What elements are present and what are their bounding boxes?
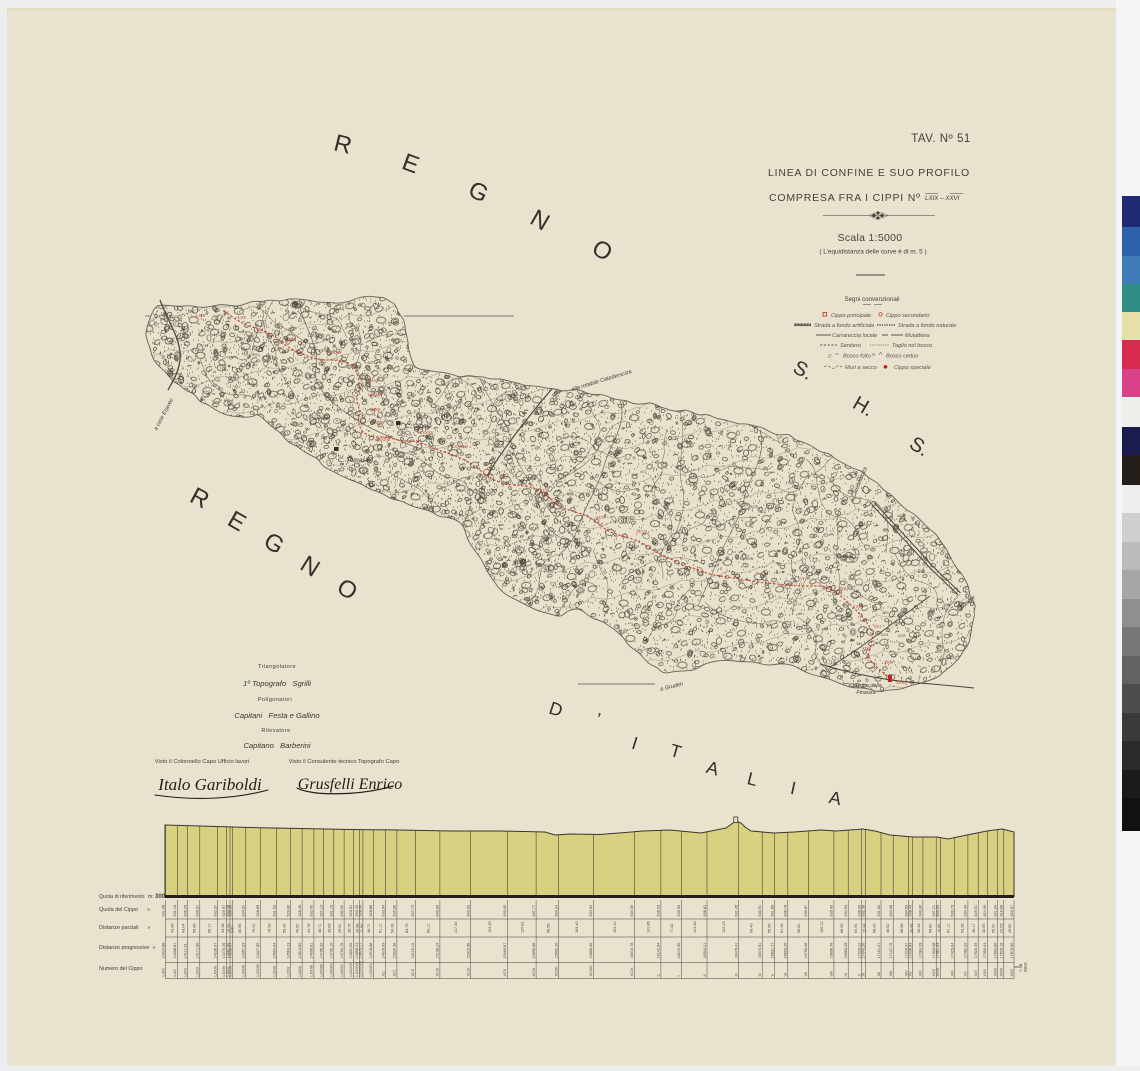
svg-text:LXXXI: LXXXI [298, 966, 302, 977]
svg-text:59.39: 59.39 [283, 923, 287, 933]
svg-text:Carrareccia locale: Carrareccia locale [832, 333, 877, 339]
svg-text:125.81: 125.81 [521, 921, 525, 933]
svg-text:XCVI: XCVI [532, 968, 536, 977]
svg-text:XC: XC [500, 473, 506, 478]
svg-text:390: 390 [252, 352, 259, 357]
svg-text:XXI: XXI [974, 970, 978, 976]
svg-text:17603.66: 17603.66 [993, 943, 997, 959]
svg-text:14564.23: 14564.23 [286, 943, 290, 959]
svg-text:14794.76: 14794.76 [340, 943, 344, 959]
svg-text:III: III [735, 973, 739, 976]
svg-text:Capitani Festa e Gallino: Capitani Festa e Gallino [234, 711, 319, 720]
svg-text:Muri a secco: Muri a secco [845, 365, 877, 371]
svg-text:77.32: 77.32 [670, 923, 674, 933]
svg-text:16219.95: 16219.95 [677, 943, 681, 959]
svg-text:II: II [720, 566, 722, 571]
svg-text:386: 386 [779, 520, 786, 525]
svg-text:58.02: 58.02 [872, 923, 876, 933]
svg-text:124.26: 124.26 [693, 921, 697, 933]
svg-text:621.04: 621.04 [993, 905, 997, 917]
svg-text:XCII: XCII [411, 969, 415, 976]
svg-text:VI: VI [784, 973, 788, 977]
svg-text:60.96: 60.96 [238, 923, 242, 933]
svg-text:640.00: 640.00 [436, 905, 440, 917]
svg-text:65.17: 65.17 [208, 923, 212, 933]
svg-text:17429.04: 17429.04 [950, 943, 954, 959]
svg-text:631.45: 631.45 [735, 905, 739, 917]
svg-text:16575.81: 16575.81 [758, 943, 762, 959]
svg-text:463: 463 [935, 649, 942, 654]
svg-text:XXV: XXV [1010, 968, 1014, 976]
svg-text:1º Topografo Sgrilli: 1º Topografo Sgrilli [243, 679, 311, 688]
svg-text:638.43: 638.43 [909, 905, 913, 917]
svg-text:640.00: 640.00 [919, 905, 923, 917]
svg-text:632.92: 632.92 [340, 905, 344, 917]
svg-text:630.87: 630.87 [804, 905, 808, 917]
svg-text:49.82: 49.82 [1008, 923, 1012, 933]
svg-text:16476.41: 16476.41 [735, 943, 739, 959]
svg-text:631.10: 631.10 [330, 905, 334, 917]
svg-text:14171.80: 14171.80 [196, 943, 200, 959]
svg-text:XCIII: XCIII [436, 968, 440, 976]
svg-text:33.48: 33.48 [221, 923, 225, 933]
svg-text:XCVII: XCVII [636, 529, 647, 534]
svg-text:14111.91: 14111.91 [183, 943, 187, 958]
svg-text:XCV: XCV [596, 515, 605, 520]
svg-text:LXXXI: LXXXI [372, 420, 384, 425]
svg-text:17626.18: 17626.18 [1000, 943, 1004, 959]
svg-text:XVIII: XVIII [936, 968, 940, 976]
svg-text:LXXXII: LXXXII [310, 965, 314, 977]
svg-text:631.18: 631.18 [173, 905, 177, 917]
svg-text:634.24: 634.24 [554, 905, 558, 917]
svg-text:16010.78: 16010.78 [630, 943, 634, 959]
svg-text:635.98: 635.98 [393, 905, 397, 917]
svg-text:20.46: 20.46 [910, 923, 914, 933]
svg-text:15315.58: 15315.58 [466, 943, 470, 959]
svg-text:631.98: 631.98 [161, 905, 165, 917]
svg-text:106.72: 106.72 [820, 921, 824, 933]
svg-text:14979.99: 14979.99 [381, 943, 385, 959]
svg-text:16631.77: 16631.77 [770, 943, 774, 959]
svg-text:632.37: 632.37 [214, 905, 218, 917]
svg-text:II: II [703, 974, 707, 976]
svg-text:300: 300 [155, 894, 166, 900]
svg-text:44.76: 44.76 [307, 923, 311, 933]
svg-text:LXXVII: LXXVII [366, 378, 379, 383]
svg-text:IX: IX [844, 972, 848, 976]
svg-text:624.99: 624.99 [983, 905, 987, 917]
svg-text:Strada a fondo naturale: Strada a fondo naturale [898, 323, 956, 329]
svg-text:629.91: 629.91 [974, 905, 978, 917]
svg-text:14357.63: 14357.63 [242, 943, 246, 959]
svg-text:XX: XX [964, 971, 968, 977]
svg-text:LXXIII: LXXIII [214, 966, 218, 976]
svg-text:Numero del Cippo: Numero del Cippo [99, 966, 142, 972]
svg-text:49.61: 49.61 [338, 923, 342, 933]
svg-text:LXXXV: LXXXV [340, 964, 344, 977]
svg-text:39.83: 39.83 [328, 923, 332, 933]
svg-text:640.00: 640.00 [466, 905, 470, 917]
svg-text:628.46: 628.46 [359, 905, 363, 917]
svg-text:Quota di riferimento: Quota di riferimento [99, 894, 145, 900]
svg-text:I: I [677, 975, 681, 976]
svg-text:636.81: 636.81 [703, 905, 707, 917]
svg-text:LXXIX: LXXIX [272, 965, 276, 976]
svg-text:C: C [680, 556, 683, 561]
svg-text:Segni convenzionali: Segni convenzionali [844, 296, 899, 303]
svg-text:117.34: 117.34 [454, 922, 458, 933]
svg-text:LXXXIII: LXXXIII [319, 964, 323, 977]
svg-text:14745.15: 14745.15 [330, 943, 334, 959]
svg-text:391: 391 [631, 622, 638, 627]
svg-text:LXX: LXX [173, 969, 177, 977]
svg-text:99.40: 99.40 [750, 923, 754, 933]
svg-text:LXXIV: LXXIV [330, 350, 342, 355]
svg-text:Distanze parziali »: Distanze parziali » [99, 925, 151, 931]
svg-text:416: 416 [450, 415, 457, 420]
svg-text:55.96: 55.96 [767, 923, 771, 933]
svg-text:LXXII: LXXII [196, 967, 200, 976]
svg-text:445: 445 [649, 449, 656, 454]
svg-text:14705.32: 14705.32 [319, 943, 323, 959]
svg-text:17043.26: 17043.26 [861, 943, 865, 959]
svg-text:LXXVI: LXXVI [228, 966, 232, 977]
svg-text:14504.84: 14504.84 [272, 943, 276, 959]
svg-text:XXIV: XXIV [884, 660, 894, 665]
svg-text:630.91: 630.91 [758, 905, 762, 917]
svg-text:LXXX: LXXX [370, 407, 381, 412]
svg-text:Italo Gariboldi: Italo Gariboldi [157, 775, 262, 794]
svg-text:Cippo secondario: Cippo secondario [886, 313, 930, 319]
svg-text:C. Tomasin: C. Tomasin [338, 457, 371, 464]
svg-text:VII: VII [804, 972, 808, 977]
svg-text:Rilevatore: Rilevatore [261, 728, 290, 734]
svg-text:637.79: 637.79 [411, 905, 415, 917]
svg-text:76.99: 76.99 [267, 923, 271, 933]
svg-text:154.12: 154.12 [613, 921, 617, 933]
svg-text:XII: XII [877, 972, 881, 977]
svg-text:634.52: 634.52 [242, 905, 246, 917]
svg-text:XIX: XIX [856, 604, 863, 609]
svg-text:36.79: 36.79 [348, 923, 352, 933]
svg-text:XC: XC [381, 971, 385, 977]
svg-text:Cippo speciale: Cippo speciale [894, 365, 931, 371]
svg-text:16963.28: 16963.28 [844, 943, 848, 959]
svg-text:Distanze progressive »: Distanze progressive » [99, 945, 155, 951]
svg-text:LXXVIII: LXXVIII [368, 392, 382, 397]
svg-text:622.97: 622.97 [1010, 905, 1014, 917]
svg-text:26.68: 26.68 [355, 923, 359, 933]
svg-text:XVI: XVI [919, 970, 923, 976]
svg-text:XXIII: XXIII [862, 646, 871, 651]
svg-text:32.55: 32.55 [982, 923, 986, 933]
svg-text:16142.64: 16142.64 [657, 943, 661, 959]
svg-text:14658.61: 14658.61 [310, 943, 314, 959]
svg-text:43.99: 43.99 [170, 923, 174, 933]
svg-text:Casotto della: Casotto della [850, 683, 881, 689]
svg-text:LXXII: LXXII [286, 337, 296, 342]
svg-text:388: 388 [631, 472, 638, 477]
svg-text:Bosco folto: Bosco folto [843, 354, 871, 360]
svg-text:Sentiero: Sentiero [840, 343, 861, 349]
svg-text:386: 386 [248, 381, 255, 386]
svg-text:54.39: 54.39 [390, 923, 394, 933]
svg-text:628.88: 628.88 [369, 905, 373, 917]
svg-text:XCI: XCI [393, 970, 397, 976]
svg-text:15198.24: 15198.24 [436, 943, 440, 959]
svg-text:15.04: 15.04 [863, 923, 867, 933]
svg-text:Finanza: Finanza [856, 690, 875, 696]
svg-text:429: 429 [882, 610, 889, 615]
svg-text:16896.78: 16896.78 [830, 943, 834, 959]
svg-text:XV: XV [909, 971, 913, 977]
svg-text:Visto il Consulente tecnico T: Visto il Consulente tecnico Topografo Ca… [289, 759, 400, 765]
svg-text:49.62: 49.62 [295, 923, 299, 933]
svg-text:XXVI: XXVI [896, 680, 906, 685]
svg-text:LXXVIII: LXXVIII [256, 964, 260, 977]
svg-text:423: 423 [759, 509, 766, 514]
svg-text:17147.79: 17147.79 [889, 943, 893, 959]
svg-text:53.28: 53.28 [960, 923, 964, 933]
svg-text:Cippo principale: Cippo principale [831, 313, 871, 319]
svg-text:LXXX: LXXX [286, 966, 290, 976]
svg-text:Visto il Colonnello Capo Uff: Visto il Colonnello Capo Ufficio lavori [155, 759, 250, 765]
svg-text:LXXXIII: LXXXIII [376, 437, 390, 442]
svg-text:V: V [770, 974, 774, 977]
svg-text:637.77: 637.77 [532, 905, 536, 917]
svg-text:634.08: 634.08 [889, 905, 893, 917]
svg-text:467: 467 [367, 360, 374, 365]
svg-text:XXIII: XXIII [993, 968, 997, 976]
svg-text:61.48: 61.48 [780, 923, 784, 933]
svg-text:XCIX: XCIX [630, 967, 634, 976]
svg-text:638.09: 638.09 [228, 905, 232, 917]
svg-text:Grusfelli Enrico: Grusfelli Enrico [298, 776, 402, 793]
svg-text:17482.32: 17482.32 [964, 943, 968, 959]
svg-text:463: 463 [570, 556, 577, 561]
svg-text:421: 421 [510, 498, 517, 503]
svg-text:15595.68: 15595.68 [532, 943, 536, 959]
svg-text:459: 459 [746, 556, 753, 561]
svg-text:59.80: 59.80 [929, 923, 933, 933]
svg-text:420: 420 [881, 632, 888, 637]
svg-text:164.40: 164.40 [575, 921, 579, 933]
svg-text:18.85: 18.85 [937, 923, 941, 933]
svg-text:LXXXIV: LXXXIV [330, 963, 334, 977]
svg-text:422: 422 [750, 504, 757, 509]
svg-text:XCII: XCII [540, 488, 548, 493]
svg-text:Taglio nel bosco: Taglio nel bosco [892, 343, 932, 349]
svg-text:50.61: 50.61 [992, 923, 996, 933]
svg-text:131.86: 131.86 [647, 921, 651, 933]
svg-text:627.13: 627.13 [319, 905, 323, 917]
svg-text:17101.27: 17101.27 [877, 943, 881, 959]
svg-text:( L’equidistanza delle curve è: ( L’equidistanza delle curve è di m. 5 ) [819, 249, 926, 256]
svg-text:LXXXVI: LXXXVI [349, 963, 353, 976]
svg-text:640.00: 640.00 [936, 905, 940, 917]
svg-text:14068.87: 14068.87 [173, 943, 177, 959]
svg-text:14427.85: 14427.85 [256, 943, 260, 959]
svg-text:16693.25: 16693.25 [784, 943, 788, 959]
svg-text:17283.29: 17283.29 [919, 943, 923, 959]
svg-text:460: 460 [897, 513, 904, 518]
svg-text:639.95: 639.95 [677, 905, 681, 917]
svg-text:80.11: 80.11 [427, 924, 431, 933]
svg-text:430: 430 [854, 654, 861, 659]
svg-text:629.80: 629.80 [286, 905, 290, 917]
svg-text:38.17: 38.17 [972, 923, 976, 933]
svg-text:639.79: 639.79 [950, 905, 954, 917]
svg-text:XCV: XCV [503, 968, 507, 976]
svg-text:LINEA DI CONFINE E SUO PROFILO: LINEA DI CONFINE E SUO PROFILO [768, 167, 970, 179]
svg-text:634.90: 634.90 [589, 905, 593, 917]
svg-text:LXIX – XXVI: LXIX – XXVI [925, 195, 960, 202]
svg-text:46.46: 46.46 [917, 923, 921, 933]
svg-text:433: 433 [515, 557, 522, 562]
svg-text:LXXVII: LXXVII [242, 965, 246, 977]
svg-text:Strada a fondo artificiale: Strada a fondo artificiale [814, 323, 874, 329]
svg-text:15118.13: 15118.13 [411, 943, 415, 959]
svg-text:418: 418 [796, 485, 803, 490]
svg-text:14296.67: 14296.67 [228, 943, 232, 959]
svg-text:636.78: 636.78 [784, 905, 788, 917]
svg-text:48.71: 48.71 [367, 923, 371, 933]
svg-text:XXII: XXII [983, 969, 987, 976]
svg-text:VI: VI [800, 576, 804, 581]
svg-text:XVII: XVII [838, 586, 846, 591]
svg-text:LXIX: LXIX [161, 968, 165, 977]
svg-text:14236.97: 14236.97 [214, 943, 218, 959]
svg-text:XIII: XIII [889, 971, 893, 977]
svg-text:15856.66: 15856.66 [589, 943, 593, 959]
svg-text:Capitano Barberini: Capitano Barberini [243, 741, 310, 750]
svg-text:46.71: 46.71 [318, 923, 322, 933]
svg-text:IV: IV [762, 573, 766, 578]
svg-text:632.36: 632.36 [861, 905, 865, 917]
svg-text:629.31: 629.31 [349, 905, 353, 917]
svg-text:631.53: 631.53 [272, 905, 276, 917]
svg-text:14870.17: 14870.17 [359, 943, 363, 959]
svg-text:14024.88: 14024.88 [161, 943, 165, 959]
svg-text:628.89: 628.89 [256, 905, 260, 917]
svg-text:59.89: 59.89 [193, 923, 197, 933]
svg-text:Scala 1:5000: Scala 1:5000 [838, 232, 903, 244]
svg-text:C. Cigale: C. Cigale [405, 423, 432, 430]
svg-text:XCIV: XCIV [466, 967, 470, 976]
svg-text:IV: IV [758, 972, 762, 976]
svg-text:417: 417 [234, 384, 241, 389]
svg-text:XXVI: XXVI [1023, 962, 1028, 972]
svg-text:C: C [657, 974, 661, 977]
svg-text:9.67: 9.67 [230, 926, 234, 933]
svg-text:16790.06: 16790.06 [804, 943, 808, 959]
svg-text:XXIV: XXIV [1000, 967, 1004, 976]
svg-text:634.30: 634.30 [964, 905, 968, 917]
svg-text:LXXXIX: LXXXIX [369, 963, 373, 977]
svg-text:369: 369 [943, 602, 950, 607]
svg-text:632.45: 632.45 [310, 905, 314, 917]
svg-text:22.53: 22.53 [1000, 923, 1004, 933]
svg-text:67.11: 67.11 [947, 924, 951, 933]
svg-text:17676.00: 17676.00 [1010, 943, 1014, 959]
svg-text:83.75: 83.75 [405, 923, 409, 933]
svg-text:VIII: VIII [830, 971, 834, 977]
svg-text:628.46: 628.46 [298, 905, 302, 917]
svg-text:TAV. Nº 51: TAV. Nº 51 [911, 133, 971, 145]
svg-text:Mulattiera: Mulattiera [905, 333, 930, 339]
svg-text:XCVIII: XCVIII [589, 966, 593, 977]
svg-text:m:: m: [148, 894, 154, 900]
svg-text:17553.04: 17553.04 [983, 943, 987, 959]
svg-text:15692.26: 15692.26 [554, 943, 558, 959]
svg-text:618.06: 618.06 [1000, 905, 1004, 917]
svg-text:70.22: 70.22 [252, 923, 256, 933]
svg-text:61.11: 61.11 [379, 924, 383, 933]
svg-text:11.94: 11.94 [360, 924, 364, 933]
svg-text:15469.87: 15469.87 [503, 943, 507, 959]
svg-text:427: 427 [482, 520, 489, 525]
svg-text:17520.49: 17520.49 [974, 943, 978, 959]
svg-text:14831.55: 14831.55 [349, 943, 353, 959]
svg-text:Poligonatori: Poligonatori [258, 697, 292, 703]
svg-text:XI: XI [861, 973, 865, 977]
svg-text:LXXXVII: LXXXVII [452, 444, 468, 449]
svg-text:635.49: 635.49 [830, 905, 834, 917]
svg-text:68.58: 68.58 [900, 923, 904, 933]
svg-text:LXXI: LXXI [183, 968, 187, 976]
svg-text:433: 433 [898, 633, 905, 638]
svg-text:17236.83: 17236.83 [909, 943, 913, 959]
svg-text:LXXXV: LXXXV [420, 430, 434, 435]
svg-text:640.00: 640.00 [503, 905, 507, 917]
svg-text:16344.21: 16344.21 [703, 943, 707, 959]
svg-text:631.89: 631.89 [770, 905, 774, 917]
svg-text:634.39: 634.39 [630, 905, 634, 917]
svg-text:634.93: 634.93 [844, 905, 848, 917]
svg-text:96.58: 96.58 [546, 923, 550, 933]
svg-text:96.81: 96.81 [797, 923, 801, 933]
svg-text:14918.88: 14918.88 [369, 943, 373, 959]
svg-text:451: 451 [836, 613, 843, 618]
svg-text:Quota del Cippo »: Quota del Cippo » [99, 907, 150, 913]
svg-text:388: 388 [573, 583, 580, 588]
svg-text:XXI: XXI [874, 624, 881, 629]
svg-text:XCVII: XCVII [554, 967, 558, 977]
svg-text:132.19: 132.19 [722, 921, 726, 933]
svg-text:15034.38: 15034.38 [393, 943, 397, 959]
svg-text:LXXXVIII: LXXXVIII [359, 961, 363, 976]
svg-text:Triangolatore: Triangolatore [258, 664, 296, 670]
svg-text:LXX: LXX [238, 315, 246, 320]
svg-text:66.50: 66.50 [840, 923, 844, 933]
svg-text:407: 407 [640, 469, 647, 474]
svg-text:64.94: 64.94 [854, 923, 858, 933]
svg-text:COMPRESA FRA I CIPPI Nº: COMPRESA FRA I CIPPI Nº [769, 192, 921, 204]
svg-text:14613.85: 14613.85 [298, 943, 302, 959]
svg-text:633.94: 633.94 [381, 905, 385, 917]
svg-text:LXIX: LXIX [196, 313, 205, 318]
svg-text:43.04: 43.04 [181, 923, 185, 933]
svg-text:Bosco ceduo: Bosco ceduo [886, 354, 918, 360]
svg-text:XIX: XIX [950, 970, 954, 977]
svg-text:636.53: 636.53 [657, 905, 661, 917]
svg-text:636.29: 636.29 [183, 905, 187, 917]
svg-text:635.07: 635.07 [196, 905, 200, 917]
svg-text:46.52: 46.52 [886, 923, 890, 933]
svg-text:154.29: 154.29 [488, 921, 492, 933]
svg-text:631.00: 631.00 [877, 905, 881, 917]
